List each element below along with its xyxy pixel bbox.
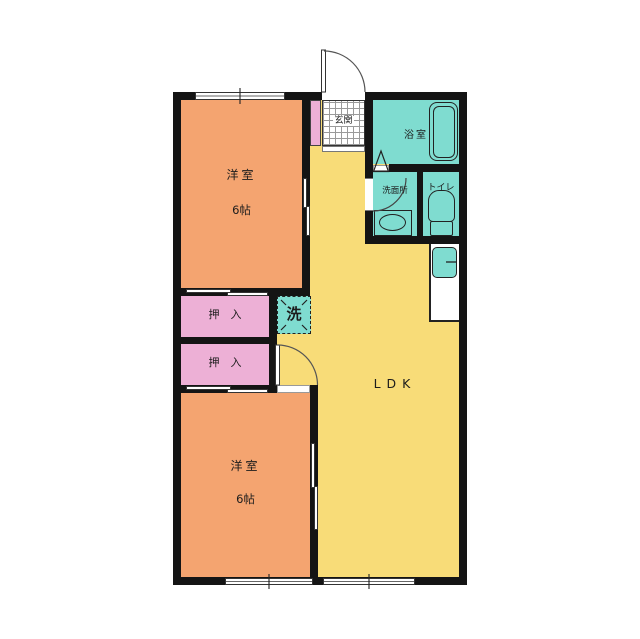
- wall-right: [459, 92, 467, 585]
- washroom-sink-icon: [374, 210, 412, 236]
- closet-lower-label: 押 入: [181, 357, 269, 369]
- bedroom-lower-doorway: [277, 385, 310, 393]
- entrance-door-icon: [322, 50, 326, 92]
- bedroom-upper-sliding-door: [306, 206, 310, 236]
- closet-upper-sliding-door: [186, 289, 231, 293]
- bedroom-lower-label: 洋室: [181, 460, 310, 473]
- bedroom-upper-label: 洋室: [181, 169, 302, 182]
- wall-hall-wet-upper: [365, 100, 373, 178]
- bedroom-upper-sliding-door: [303, 178, 307, 208]
- window-bottom-ldk: [323, 578, 415, 585]
- wall-top-right: [365, 92, 467, 100]
- closet-upper-label: 押 入: [181, 309, 269, 321]
- washroom-doorway: [365, 178, 373, 211]
- wall-bottom: [173, 577, 467, 585]
- entrance-label: 玄関: [322, 117, 365, 127]
- window-top: [195, 92, 285, 100]
- kitchen-sink-icon: [432, 247, 457, 278]
- bathroom-doorway: [373, 165, 389, 171]
- toilet-icon: [428, 190, 455, 222]
- bedroom-lower-sliding-door: [314, 486, 318, 530]
- closet-lower-sliding-door: [186, 386, 231, 390]
- bathroom-label: 浴室: [373, 130, 459, 141]
- laundry-label: 洗: [277, 306, 311, 323]
- wall-between-closets: [181, 337, 277, 344]
- entrance-step: [322, 146, 365, 152]
- bedroom-lower-sliding-door: [311, 443, 315, 488]
- window-bottom-bedroom: [225, 578, 313, 585]
- bedroom-lower-size: 6帖: [181, 493, 310, 506]
- washroom-label: 洗面所: [373, 187, 417, 196]
- bedroom-upper-room: [181, 100, 302, 288]
- toilet-tank-icon: [430, 221, 453, 236]
- closet-lower-sliding-door: [227, 389, 268, 393]
- bedroom-upper-size: 6帖: [181, 204, 302, 217]
- shoe-cabinet: [310, 100, 321, 146]
- wall-bathroom-south: [389, 164, 459, 172]
- entrance-door-swing: [324, 51, 365, 92]
- ldk-label: LDK: [345, 377, 445, 391]
- closet-upper-sliding-door: [227, 292, 268, 296]
- floor-plan: 洋室 6帖 洋室 6帖 押 入 押 入 玄関 浴室 洗面所 トイレ 洗 LDK: [0, 0, 640, 639]
- wall-wet-area-south: [365, 236, 467, 244]
- toilet-label: トイレ: [423, 184, 459, 194]
- bedroom-lower-room: [181, 393, 310, 577]
- wall-left: [173, 92, 181, 585]
- wall-washroom-toilet: [417, 172, 423, 236]
